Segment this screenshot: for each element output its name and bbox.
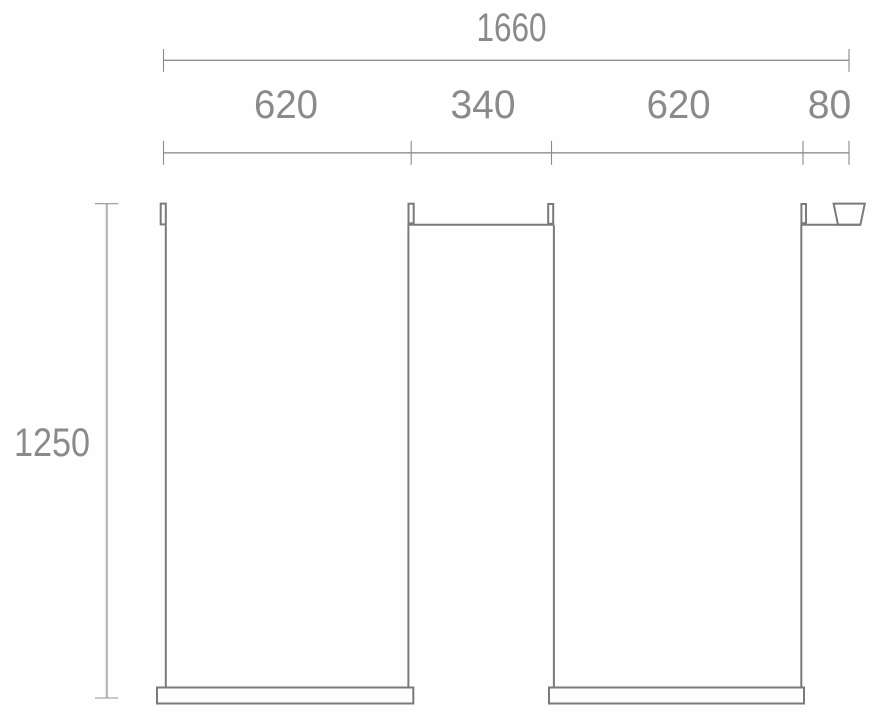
- svg-text:80: 80: [808, 83, 852, 127]
- svg-text:620: 620: [647, 83, 711, 127]
- svg-text:1660: 1660: [477, 6, 547, 50]
- svg-text:340: 340: [451, 83, 516, 127]
- svg-text:1250: 1250: [14, 421, 90, 465]
- svg-text:620: 620: [254, 83, 318, 127]
